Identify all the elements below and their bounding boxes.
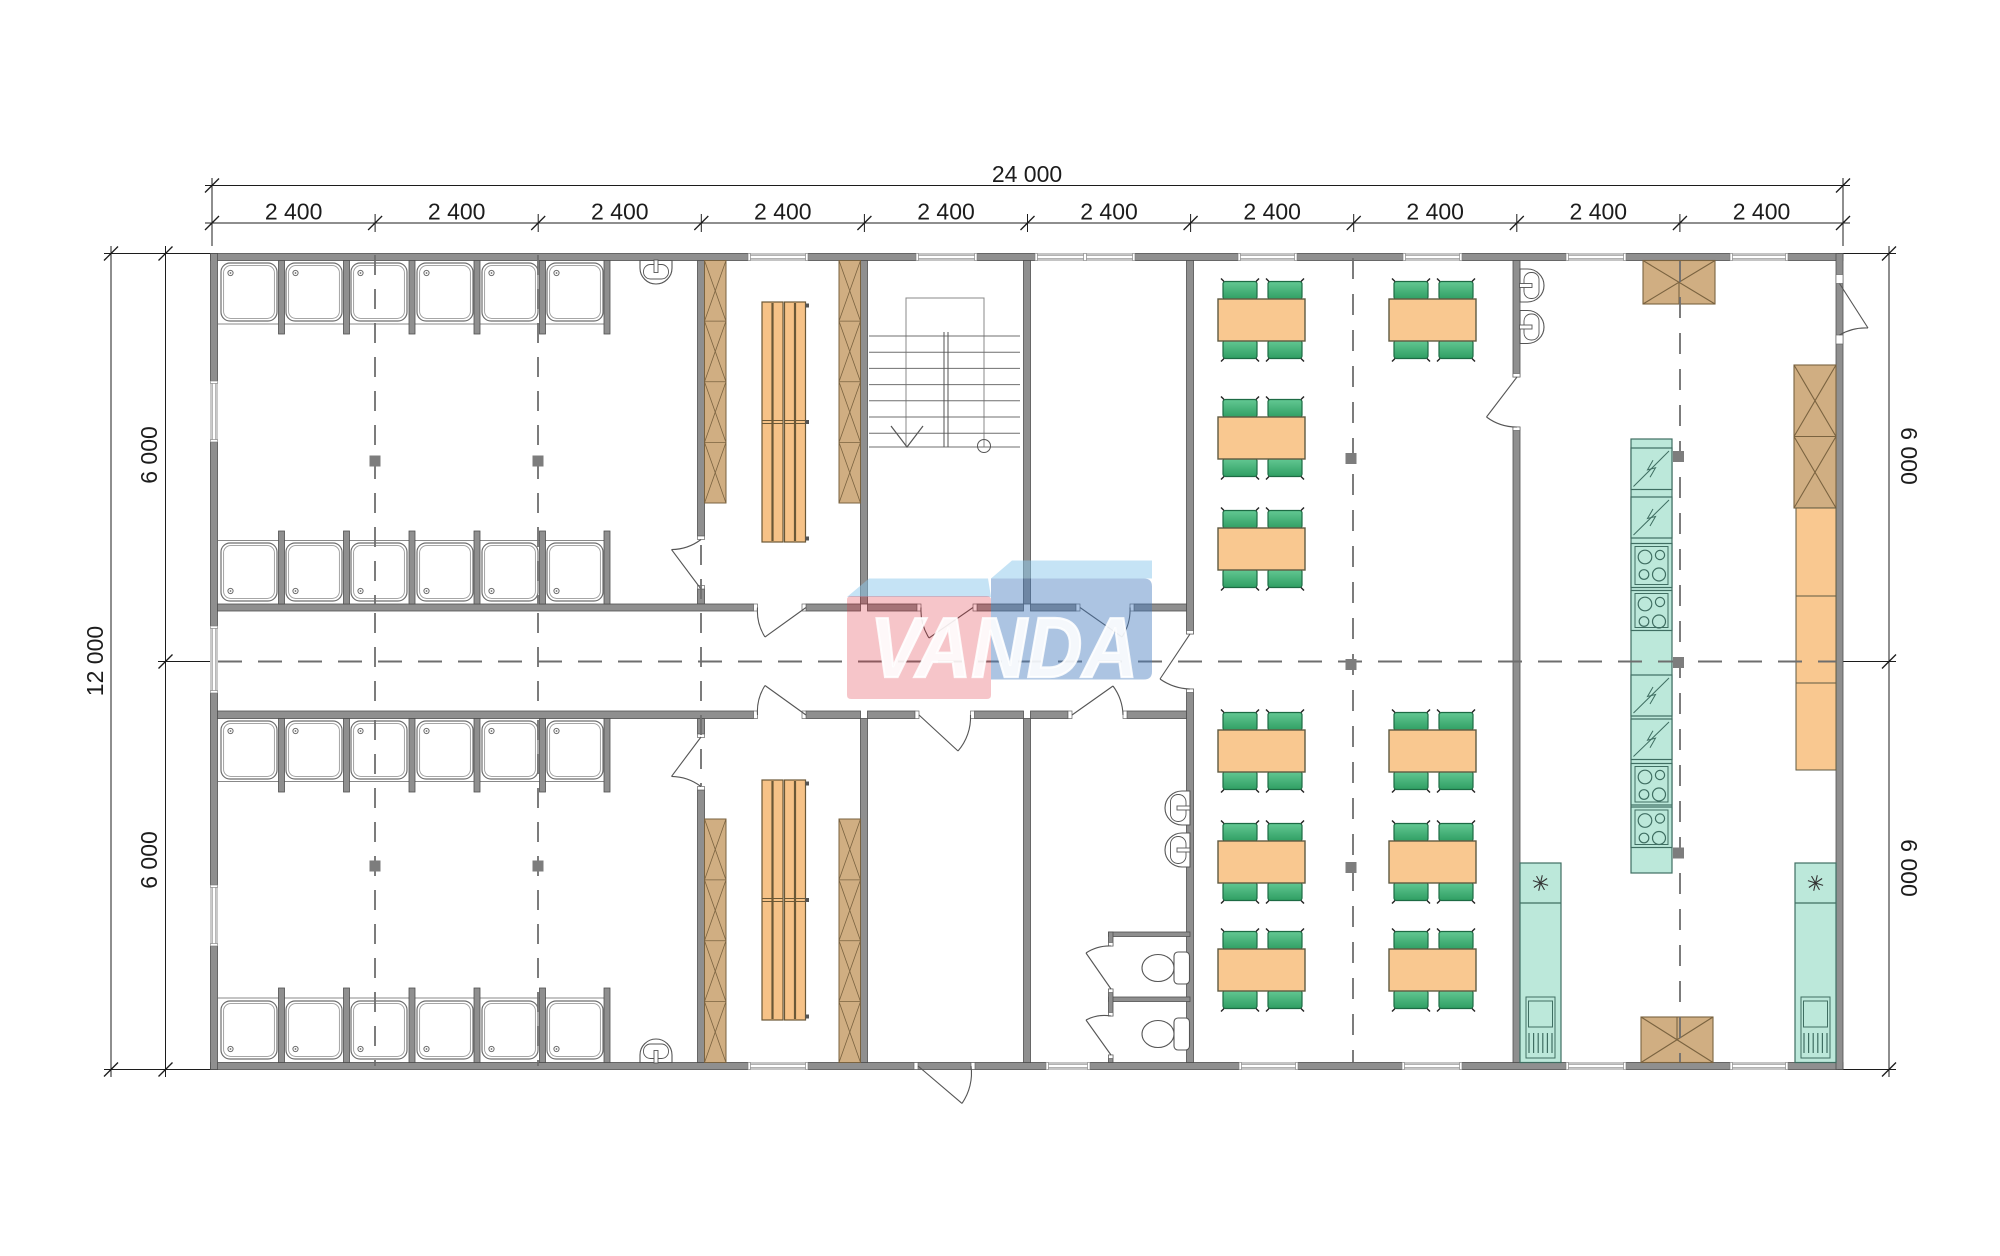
svg-text:2 400: 2 400 [1570,199,1628,225]
svg-text:2 400: 2 400 [1243,199,1301,225]
svg-text:6 000: 6 000 [136,426,162,484]
svg-text:2 400: 2 400 [428,199,486,225]
svg-text:6 000: 6 000 [1896,839,1922,897]
svg-text:6 000: 6 000 [136,831,162,889]
svg-text:2 400: 2 400 [754,199,812,225]
svg-text:2 400: 2 400 [1406,199,1464,225]
svg-text:2 400: 2 400 [1080,199,1138,225]
svg-text:2 400: 2 400 [265,199,323,225]
svg-text:2 400: 2 400 [917,199,975,225]
svg-text:24 000: 24 000 [992,161,1062,187]
svg-text:12 000: 12 000 [82,626,108,696]
svg-text:2 400: 2 400 [591,199,649,225]
svg-text:2 400: 2 400 [1733,199,1791,225]
svg-text:6 000: 6 000 [1896,427,1922,485]
svg-text:VANDA: VANDA [870,601,1138,696]
